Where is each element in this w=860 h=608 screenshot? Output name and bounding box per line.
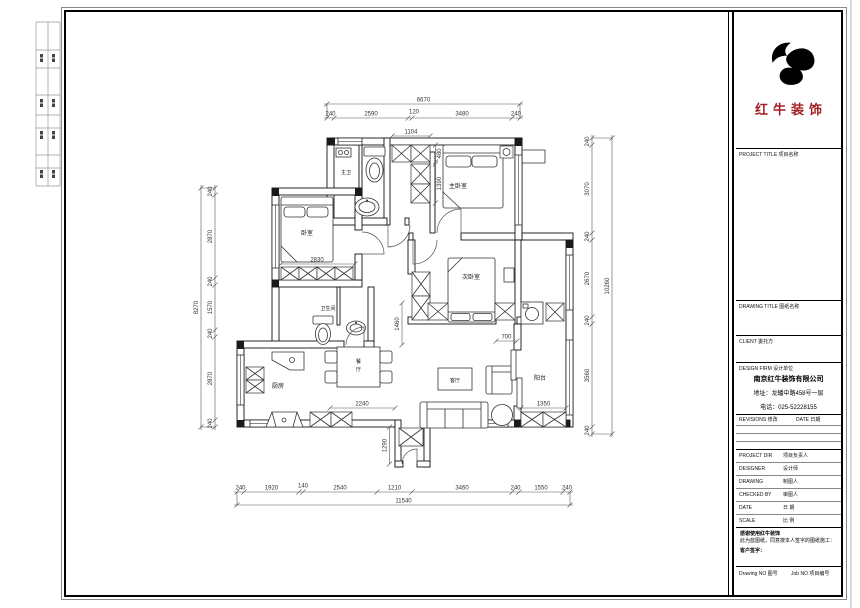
door-left-bedroom (362, 232, 384, 254)
wardrobe-closet (392, 145, 430, 203)
window (515, 155, 522, 225)
room-label-dining-1: 餐 (356, 358, 361, 365)
equipment-platform (500, 146, 513, 158)
balcony-cabinet (521, 412, 566, 427)
room-label-master-bedroom: 主卧室 (449, 182, 467, 190)
company-address: 地址：龙蟠中路458号一层 (736, 388, 841, 397)
washer-box-master-bath (336, 148, 351, 157)
svg-text:700: 700 (501, 335, 512, 341)
svg-text:2670: 2670 (585, 271, 591, 285)
row-checked-by: CHECKED BY审图人 (739, 491, 798, 498)
svg-text:3070: 3070 (585, 182, 591, 196)
door-master-bath (388, 225, 410, 247)
armchair (486, 366, 512, 394)
date-header: DATE 日期 (796, 416, 820, 423)
svg-text:1390: 1390 (437, 176, 443, 190)
svg-text:6670: 6670 (417, 98, 431, 104)
side-table (492, 405, 513, 426)
sink-master-bath (355, 198, 379, 216)
left-bed (281, 197, 333, 262)
fold-strip (36, 22, 60, 186)
logo-text: 红牛装饰 (736, 99, 841, 118)
svg-text:240: 240 (208, 418, 214, 429)
entry-shoe-cabinet (399, 428, 423, 446)
svg-text:2870: 2870 (208, 229, 214, 243)
svg-text:240: 240 (235, 486, 246, 492)
drawing-title-label: DRAWING TITLE 图纸名称 (739, 303, 799, 310)
svg-text:240: 240 (585, 315, 591, 326)
svg-text:1920: 1920 (265, 486, 279, 492)
revisions-header: REVISIONS 修改 (739, 416, 778, 423)
door-entry (402, 449, 417, 464)
svg-text:3480: 3480 (455, 112, 469, 118)
room-label-bathroom: 卫生间 (320, 305, 335, 312)
master-bed (443, 145, 503, 208)
note-line1: 感谢使用红牛装饰 (740, 531, 838, 538)
utility-cabinet (546, 303, 564, 321)
washing-machine (521, 302, 543, 324)
svg-text:1210: 1210 (388, 486, 402, 492)
svg-text:2870: 2870 (208, 371, 214, 385)
window (272, 205, 279, 268)
toilet-bathroom (313, 316, 333, 345)
svg-text:240: 240 (510, 486, 521, 492)
svg-text:120: 120 (409, 110, 420, 116)
svg-text:2830: 2830 (310, 258, 324, 264)
company-name: 南京红牛装饰有限公司 (736, 374, 841, 384)
door-second-bedroom (413, 240, 437, 264)
svg-text:1350: 1350 (537, 402, 551, 408)
svg-text:140: 140 (298, 484, 309, 490)
logo: 红牛装饰 (736, 32, 841, 118)
room-label-kitchen: 厨房 (272, 382, 284, 390)
room-label-living: 客厅 (450, 377, 460, 384)
svg-text:240: 240 (585, 231, 591, 242)
svg-text:3560: 3560 (585, 368, 591, 382)
svg-text:1104: 1104 (405, 130, 419, 136)
note-line2: 此为蓝图纸，同意按本人签字的图纸施工： (740, 538, 838, 545)
svg-text:240: 240 (208, 328, 214, 339)
row-date: DATE日 期 (739, 504, 794, 511)
sliding-door (511, 350, 522, 408)
row-project-dir: PROJECT DIR项目负责人 (739, 452, 808, 459)
room-label-bedroom: 卧室 (301, 229, 313, 237)
window (237, 355, 244, 405)
svg-text:10260: 10260 (605, 277, 611, 294)
title-block: 红牛装饰 PROJECT TITLE 项目名称 DRAWING TITLE 图纸… (736, 10, 841, 595)
room-label-master-bath: 主卫 (341, 169, 351, 176)
svg-text:3460: 3460 (455, 486, 469, 492)
svg-text:2240: 2240 (355, 402, 369, 408)
svg-text:2540: 2540 (333, 486, 347, 492)
svg-text:8270: 8270 (194, 300, 200, 314)
bull-logo-icon (760, 32, 818, 90)
svg-text:240: 240 (585, 136, 591, 147)
sofa (420, 402, 488, 428)
svg-text:1290: 1290 (383, 438, 389, 452)
row-designer: DESIGNER设计师 (739, 465, 798, 472)
toilet-master-bath (364, 147, 385, 182)
room-label-dining-2: 厅 (356, 367, 361, 373)
window (566, 255, 573, 310)
svg-text:240: 240 (511, 112, 522, 118)
cad-floorplan-sheet: { "title_block": { "logo_text": "红牛装饰", … (0, 0, 860, 608)
job-no-label: Job NO 项目编号 (791, 570, 829, 577)
svg-text:240: 240 (208, 186, 214, 197)
company-phone: 电话：025-52228155 (736, 402, 841, 411)
svg-text:240: 240 (325, 112, 336, 118)
svg-text:2590: 2590 (364, 112, 378, 118)
design-firm-label: DESIGN FIRM 设计单位 (739, 365, 793, 372)
svg-text:1550: 1550 (534, 486, 548, 492)
window (338, 138, 362, 145)
svg-text:1460: 1460 (395, 317, 401, 331)
svg-text:240: 240 (562, 486, 573, 492)
sink-bathroom (347, 321, 366, 335)
client-sign-label: 客户签字： (740, 548, 838, 555)
svg-text:11540: 11540 (395, 499, 412, 505)
svg-text:1570: 1570 (208, 300, 214, 314)
floor-plan-canvas: 240 2590 120 3480 240 6670 240 1920 140 … (0, 0, 860, 608)
door-master-bedroom (437, 209, 461, 233)
row-scale: SCALE比 例 (739, 517, 794, 524)
wardrobe-left-bedroom (281, 267, 353, 280)
drawing-no-label: Drawing NO 图号 (739, 570, 778, 577)
room-label-balcony: 阳台 (534, 374, 546, 382)
svg-text:240: 240 (208, 276, 214, 287)
row-drawing: DRAWING制图人 (739, 478, 798, 485)
svg-text:240: 240 (585, 425, 591, 436)
client-label: CLIENT 委托方 (739, 338, 773, 345)
window (566, 340, 573, 415)
svg-text:480: 480 (437, 148, 443, 159)
project-title-label: PROJECT TITLE 项目名称 (739, 151, 799, 158)
room-label-second-bedroom: 次卧室 (462, 273, 480, 281)
